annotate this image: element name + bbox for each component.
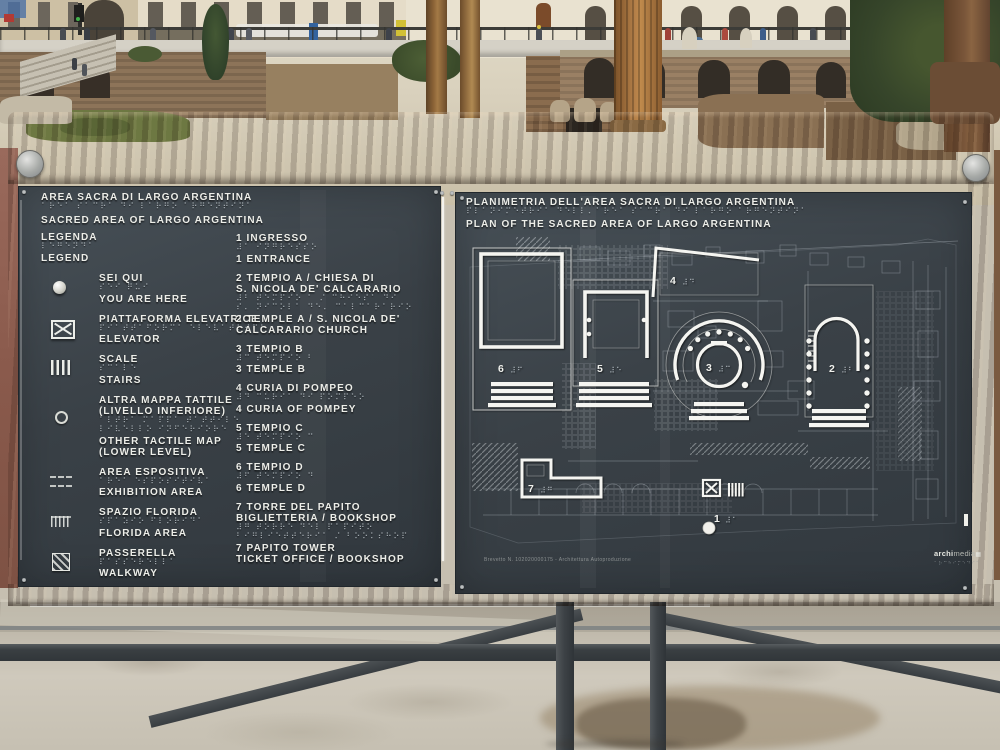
bush — [128, 46, 162, 62]
legend-item-other-tactile-map: ALTRA MAPPA TATTILE (LIVELLO INFERIORE) … — [41, 395, 237, 458]
florida-area-icon — [51, 516, 71, 527]
plan-label-7-braille: ⠼⠛ — [540, 486, 554, 495]
elevator-icon — [51, 320, 75, 339]
legend-label-it2: (LIVELLO INFERIORE) — [99, 406, 241, 417]
plan-label-2: 2 — [829, 363, 835, 375]
photo-scene: AREA SACRA DI LARGO ARGENTINA ⠁⠗⠑⠁ ⠎⠁⠉⠗⠁… — [0, 0, 1000, 750]
archimedia-logo-mark-icon: ▦ — [975, 552, 981, 558]
arcade-arch — [584, 58, 615, 98]
tactile-panel-left: AREA SACRA DI LARGO ARGENTINA ⠁⠗⠑⠁ ⠎⠁⠉⠗⠁… — [18, 186, 441, 587]
plan-title-block: PLANIMETRIA DELL'AREA SACRA DI LARGO ARG… — [466, 197, 808, 230]
panel-screw — [460, 585, 464, 589]
panel-title-braille: ⠁⠗⠑⠁ ⠎⠁⠉⠗⠁ ⠙⠊ ⠇⠁⠗⠛⠕ ⠁⠗⠛⠑⠝⠞⠊⠝⠁ — [41, 203, 264, 213]
other-map-ring-icon — [55, 411, 68, 424]
glass-streak — [580, 196, 596, 588]
panel-screw — [440, 191, 444, 195]
patent-footnote: Brevetto N. 102020000175 - Architettura … — [484, 557, 631, 563]
stone-bollard — [682, 27, 697, 49]
ancient-column — [460, 0, 480, 118]
stone-bollard — [740, 28, 752, 48]
panel-screw — [450, 191, 454, 195]
plan-label-1: 1 — [714, 513, 720, 525]
archimedia-logo-bold: archi — [934, 549, 953, 558]
plan-label-4: 4 — [670, 275, 676, 287]
legend-heading-en: LEGEND — [41, 253, 98, 264]
frame-bolt-left — [16, 150, 44, 178]
panel-screw — [460, 196, 464, 200]
legend-label-en: YOU ARE HERE — [99, 294, 188, 305]
legend-item-stairs: SCALE ⠎⠉⠁⠇⠑ STAIRS — [41, 354, 237, 386]
legend-label-en: EXHIBITION AREA — [99, 487, 213, 498]
panel-screw — [22, 578, 26, 582]
legend-label-en: FLORIDA AREA — [99, 528, 205, 539]
traffic-light-green — [76, 17, 80, 21]
temple-a-outline — [805, 285, 873, 427]
bus-red — [4, 14, 14, 22]
plan-label-2-braille: ⠼⠃ — [841, 366, 855, 375]
legend-label-braille2: ⠇⠊⠧⠑⠇⠇⠕ ⠊⠝⠋⠑⠗⠊⠕⠗⠑ — [99, 426, 241, 436]
archimedia-logo-light: media — [953, 549, 975, 558]
plan-cobblestone-patches — [558, 245, 934, 513]
plan-label-3-braille: ⠼⠉ — [718, 365, 732, 374]
plan-label-6: 6 — [498, 363, 504, 375]
glass-edge-reflection-left — [20, 200, 22, 560]
ancient-column — [494, 2, 515, 122]
plan-label-5: 5 — [597, 363, 603, 375]
arcade-arch — [758, 60, 790, 98]
arcade-arch — [698, 60, 730, 98]
glass-streak — [300, 190, 326, 582]
legend-label-braille: ⠏⠁⠎⠎⠑⠗⠑⠇⠇⠁ — [99, 559, 177, 569]
glass-streak — [660, 196, 670, 588]
walkway-hatch-icon — [52, 553, 70, 571]
legend-item-walkway: PASSERELLA ⠏⠁⠎⠎⠑⠗⠑⠇⠇⠁ WALKWAY — [41, 548, 237, 580]
plan-label-6-braille: ⠼⠋ — [510, 366, 524, 375]
legend-heading-braille: ⠇⠑⠛⠑⠝⠙⠁ — [41, 243, 98, 253]
plan-label-1-braille: ⠼⠁ — [725, 516, 739, 525]
panel-title-en: SACRED AREA OF LARGO ARGENTINA — [41, 215, 264, 226]
pedestrian-on-stairs — [82, 64, 87, 76]
plan-label-3: 3 — [706, 362, 712, 374]
stairs-icon — [51, 360, 71, 375]
legend-label-it: ALTRA MAPPA TATTILE — [99, 395, 241, 406]
wall-sliver-right — [994, 150, 1000, 580]
legend-item-florida-area: SPAZIO FLORIDA ⠎⠏⠁⠵⠊⠕ ⠋⠇⠕⠗⠊⠙⠁ FLORIDA AR… — [41, 507, 237, 539]
archimedia-logo: archimedia▦ ⠁⠗⠉⠓⠊⠍⠑⠙⠊⠁ — [934, 543, 981, 567]
pedestrian-on-stairs — [72, 58, 77, 70]
panel-screw — [963, 200, 967, 204]
temple-d-outline — [473, 248, 571, 410]
legend-item-elevator: PIATTAFORMA ELEVATRICE ⠏⠊⠁⠞⠞⠁⠋⠕⠗⠍⠁ ⠑⠇⠑⠧⠁… — [41, 314, 237, 346]
legend-list: SEI QUI ⠎⠑⠊ ⠟⠥⠊ YOU ARE HERE PIATTAFORMA… — [41, 273, 237, 588]
frame-bolt-right — [962, 154, 990, 182]
tactile-panel-right: PLANIMETRIA DELL'AREA SACRA DI LARGO ARG… — [455, 192, 972, 594]
legend-label-braille: ⠎⠑⠊ ⠟⠥⠊ — [99, 284, 188, 294]
glass-edge-glint — [964, 514, 968, 526]
legend-item-you-are-here: SEI QUI ⠎⠑⠊ ⠟⠥⠊ YOU ARE HERE — [41, 273, 237, 305]
panel-screw — [963, 586, 967, 590]
plan-title-braille: ⠏⠇⠁⠝⠊⠍⠑⠞⠗⠊⠁ ⠙⠑⠇⠇⠄⠁⠗⠑⠁ ⠎⠁⠉⠗⠁ ⠙⠊ ⠇⠁⠗⠛⠕ ⠁⠗⠛… — [466, 208, 808, 218]
tactile-site-plan: 6 ⠼⠋ 5 ⠼⠑ 4 ⠼⠙ 3 ⠼⠉ 2 ⠼⠃ 7 ⠼⠛ 1 ⠼⠁ — [458, 231, 969, 565]
arcade-arch — [816, 62, 846, 98]
legend-label-braille: ⠁⠗⠑⠁ ⠑⠎⠏⠕⠎⠊⠞⠊⠧⠁ — [99, 478, 213, 488]
plan-label-4-braille: ⠼⠙ — [682, 278, 696, 287]
worker-helmet — [537, 25, 541, 29]
legend-label-it: PASSERELLA — [99, 548, 177, 559]
exhibition-area-icon — [50, 476, 72, 487]
plan-label-7: 7 — [528, 483, 534, 495]
support-beam — [0, 644, 1000, 661]
legend-label-braille: ⠎⠏⠁⠵⠊⠕ ⠋⠇⠕⠗⠊⠙⠁ — [99, 518, 205, 528]
legend-label-it: AREA ESPOSITIVA — [99, 467, 213, 478]
panel-screw — [22, 190, 26, 194]
support-post — [650, 602, 666, 750]
plan-label-5-braille: ⠼⠑ — [609, 366, 623, 375]
panel-title-block: AREA SACRA DI LARGO ARGENTINA ⠁⠗⠑⠁ ⠎⠁⠉⠗⠁… — [41, 192, 264, 226]
plan-title-en: PLAN OF THE SACRED AREA OF LARGO ARGENTI… — [466, 219, 808, 230]
archimedia-logo-braille: ⠁⠗⠉⠓⠊⠍⠑⠙⠊⠁ — [934, 561, 981, 567]
legend-label-en: WALKWAY — [99, 568, 177, 579]
ancient-column-large — [614, 0, 662, 128]
support-post — [556, 602, 574, 750]
legend-label-en2: (LOWER LEVEL) — [99, 447, 241, 458]
panel-screw — [434, 190, 438, 194]
you-are-here-dot-icon — [53, 281, 66, 294]
legend-label-braille: ⠎⠉⠁⠇⠑ — [99, 365, 142, 375]
panel-screw — [434, 578, 438, 582]
temple-d-steps — [488, 382, 556, 407]
glass-divider-reflection — [442, 197, 444, 561]
post-shadow — [545, 740, 685, 748]
legend-label-en: OTHER TACTILE MAP — [99, 436, 241, 447]
cypress-tree — [202, 4, 229, 80]
ancient-column — [426, 0, 447, 114]
legend-label-en: STAIRS — [99, 375, 142, 386]
legend-item-exhibition-area: AREA ESPOSITIVA ⠁⠗⠑⠁ ⠑⠎⠏⠕⠎⠊⠞⠊⠧⠁ EXHIBITI… — [41, 467, 237, 499]
sign-frame-top-bar — [8, 112, 994, 184]
legend-heading: LEGENDA ⠇⠑⠛⠑⠝⠙⠁ LEGEND — [41, 232, 98, 264]
